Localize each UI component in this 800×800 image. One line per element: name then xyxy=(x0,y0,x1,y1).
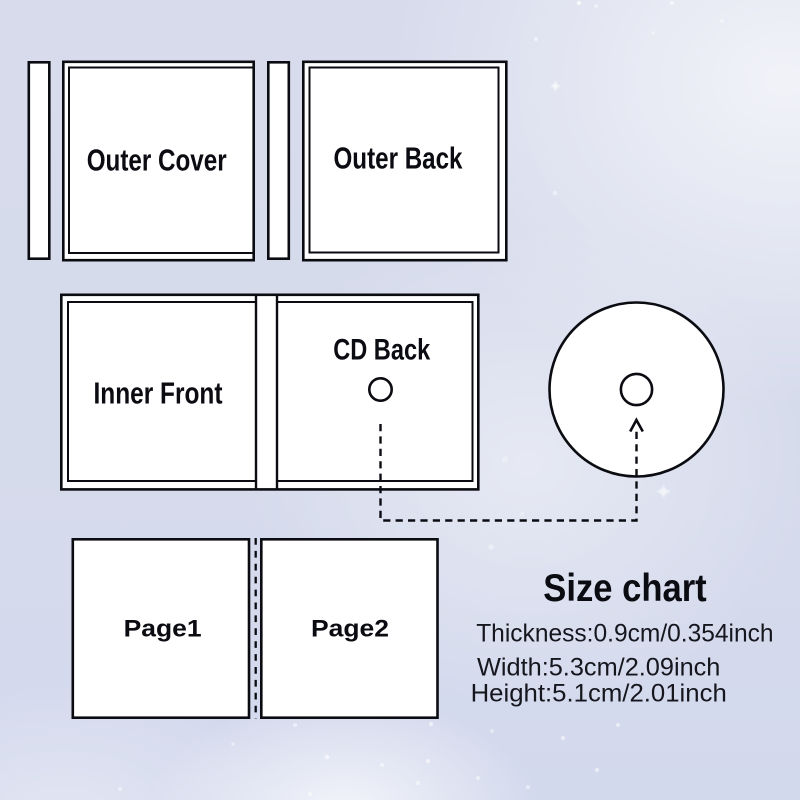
svg-text:Width:5.3cm/2.09inch: Width:5.3cm/2.09inch xyxy=(477,653,720,681)
svg-text:Inner Front: Inner Front xyxy=(94,376,223,411)
svg-text:Outer Back: Outer Back xyxy=(334,141,464,176)
svg-text:Size chart: Size chart xyxy=(543,567,706,610)
svg-text:Height:5.1cm/2.01inch: Height:5.1cm/2.01inch xyxy=(471,680,727,708)
svg-text:Page2: Page2 xyxy=(311,615,389,642)
svg-text:Outer Cover: Outer Cover xyxy=(87,143,227,178)
svg-text:CD Back: CD Back xyxy=(333,333,430,366)
svg-text:Thickness:0.9cm/0.354inch: Thickness:0.9cm/0.354inch xyxy=(476,620,773,648)
svg-text:Page1: Page1 xyxy=(124,615,202,642)
